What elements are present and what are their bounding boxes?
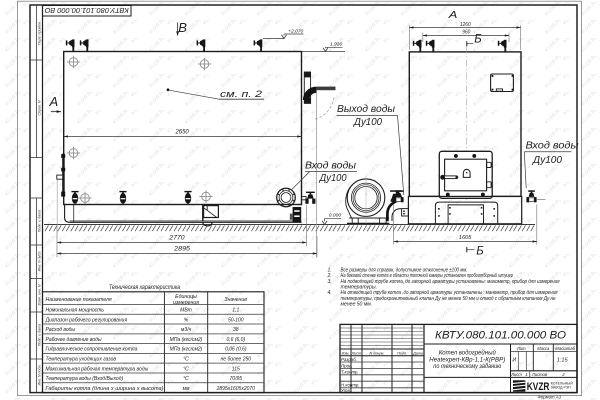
- svg-text:Вход воды: Вход воды: [305, 160, 357, 171]
- svg-text:Подп. и дата: Подп. и дата: [37, 210, 41, 233]
- svg-text:Вход воды: Вход воды: [526, 141, 580, 152]
- svg-text:Значение: Значение: [224, 297, 247, 303]
- svg-text:Диапазон рабочего регулировани: Диапазон рабочего регулирования: [45, 317, 128, 323]
- svg-text:Н.контр.: Н.контр.: [341, 382, 360, 387]
- svg-text:3.: 3.: [328, 279, 332, 285]
- svg-text:°С: °С: [183, 357, 189, 363]
- svg-text:Перв. примен.: Перв. примен.: [37, 21, 41, 45]
- svg-text:Лит.: Лит.: [516, 346, 527, 351]
- svg-text:Рабочее давление воды: Рабочее давление воды: [46, 337, 102, 343]
- svg-text:Изм.: Изм.: [342, 352, 350, 356]
- svg-text:Ду100: Ду100: [319, 173, 347, 184]
- svg-text:Б: Б: [476, 246, 484, 258]
- svg-text:1:15: 1:15: [557, 357, 569, 363]
- svg-text:Листов: Листов: [531, 372, 548, 377]
- svg-text:Ду100: Ду100: [353, 117, 382, 128]
- svg-text:Температура воды (Вход/Выход): Температура воды (Вход/Выход): [46, 376, 124, 382]
- svg-text:Техническая характеристика: Техническая характеристика: [109, 284, 180, 291]
- svg-text:Лист: Лист: [351, 352, 362, 356]
- svg-text:N докум.: N докум.: [370, 352, 385, 356]
- svg-text:1605: 1605: [459, 235, 473, 241]
- svg-text:Наименование показателя: Наименование показателя: [46, 297, 112, 303]
- svg-text:Масштаб: Масштаб: [555, 346, 576, 351]
- svg-text:Гидравлическое сопротивление к: Гидравлическое сопротивление котла: [46, 347, 138, 353]
- svg-text:Формат А3: Формат А3: [538, 395, 562, 400]
- svg-text:Выход воды: Выход воды: [337, 104, 395, 115]
- svg-text:70/95: 70/95: [230, 376, 243, 382]
- svg-text:2895: 2895: [173, 246, 190, 253]
- svg-text:Котел водогрейный: Котел водогрейный: [439, 350, 497, 357]
- svg-text:1: 1: [525, 372, 527, 377]
- svg-text:не более 250: не более 250: [221, 357, 252, 363]
- svg-text:38: 38: [233, 327, 239, 333]
- svg-text:Расход воды: Расход воды: [46, 327, 76, 333]
- svg-text:0,06 (0,6): 0,06 (0,6): [225, 347, 247, 353]
- svg-text:температуры, предохранительный: температуры, предохранительный клапан Ду…: [341, 295, 556, 302]
- svg-text:КВТУ.080.101.00.000 ВО: КВТУ.080.101.00.000 ВО: [44, 6, 128, 15]
- svg-text:4.: 4.: [328, 290, 332, 296]
- svg-text:Справ. N: Справ. N: [37, 100, 41, 115]
- svg-text:Т.контр.: Т.контр.: [341, 370, 359, 375]
- svg-text:Heatexpert-КВр-1,1-К(РВР): Heatexpert-КВр-1,1-К(РВР): [429, 357, 505, 363]
- svg-text:мм: мм: [183, 386, 190, 392]
- svg-text:+2.070: +2.070: [288, 28, 303, 34]
- svg-text:Разраб.: Разраб.: [341, 357, 357, 362]
- svg-text:МПа (кгс/см2): МПа (кгс/см2): [170, 337, 203, 343]
- svg-text:Пров.: Пров.: [341, 363, 353, 368]
- svg-text:по техническому заданию: по техническому заданию: [433, 364, 501, 370]
- svg-text:КВТУ.080.101.00.000 ВО: КВТУ.080.101.00.000 ВО: [435, 329, 566, 341]
- svg-text:2895х1605х2070: 2895х1605х2070: [216, 386, 256, 392]
- svg-text:см. п. 2: см. п. 2: [220, 89, 262, 99]
- svg-text:1260: 1260: [460, 22, 471, 28]
- svg-text:Инв. N подл.: Инв. N подл.: [37, 364, 41, 385]
- svg-text:50-100: 50-100: [228, 317, 244, 323]
- svg-text:Подп. и дата: Подп. и дата: [37, 324, 41, 347]
- svg-text:Лист: Лист: [510, 372, 522, 377]
- svg-text:2770: 2770: [168, 235, 185, 242]
- svg-text:Б: Б: [474, 34, 482, 46]
- svg-text:Дата: Дата: [412, 352, 423, 356]
- svg-text:KVZR: KVZR: [527, 381, 550, 393]
- svg-text:Инв. N дубл.: Инв. N дубл.: [37, 251, 41, 272]
- svg-text:МВт: МВт: [180, 308, 192, 314]
- svg-text:°С: °С: [183, 366, 189, 372]
- svg-text:960: 960: [462, 30, 470, 36]
- svg-text:Максимальная рабочая температу: Максимальная рабочая температура воды: [46, 366, 149, 372]
- svg-text:%: %: [184, 317, 189, 323]
- svg-text:Номинальная мощность: Номинальная мощность: [46, 308, 105, 314]
- svg-text:Ду100: Ду100: [532, 155, 563, 166]
- svg-text:измерения: измерения: [173, 300, 199, 306]
- svg-text:Подп.: Подп.: [397, 352, 407, 356]
- svg-text:МПа (кгс/см2): МПа (кгс/см2): [170, 347, 203, 353]
- svg-text:°С: °С: [183, 376, 189, 382]
- svg-text:А: А: [49, 94, 59, 109]
- svg-text:1.930: 1.930: [330, 42, 343, 48]
- svg-text:0.000: 0.000: [329, 213, 342, 219]
- svg-text:м3/ч: м3/ч: [181, 327, 192, 333]
- svg-text:Взам. инв. N: Взам. инв. N: [37, 284, 41, 305]
- svg-text:1,1: 1,1: [232, 308, 239, 314]
- svg-text:В: В: [178, 20, 187, 35]
- svg-text:2650: 2650: [175, 130, 190, 136]
- svg-text:115: 115: [232, 366, 240, 372]
- svg-text:Температура уходящих газов: Температура уходящих газов: [46, 357, 117, 363]
- svg-text:0,6 (6,0): 0,6 (6,0): [226, 337, 245, 343]
- svg-text:Масса: Масса: [537, 346, 550, 351]
- svg-text:Габариты котла (длина х ширина: Габариты котла (длина х ширина х высота): [46, 386, 164, 392]
- svg-text:ЗАВОД РЭП: ЗАВОД РЭП: [551, 386, 572, 390]
- svg-text:Утв.: Утв.: [341, 388, 351, 393]
- svg-text:менее 50 мм.: менее 50 мм.: [341, 302, 373, 308]
- svg-text:А: А: [448, 10, 458, 21]
- svg-text:И: И: [512, 357, 516, 363]
